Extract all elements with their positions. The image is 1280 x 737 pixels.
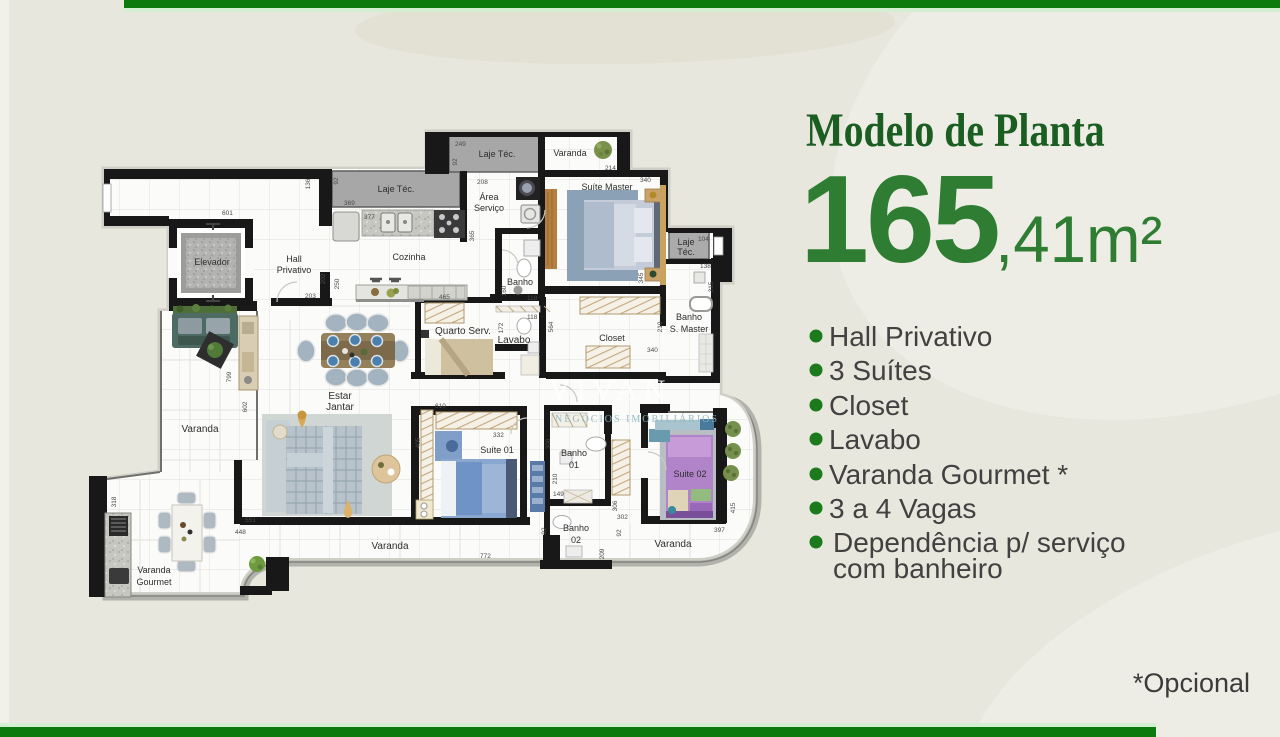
svg-text:Lavabo: Lavabo <box>498 335 531 346</box>
svg-text:,41m²: ,41m² <box>995 203 1162 276</box>
svg-text:448: 448 <box>235 529 246 536</box>
svg-text:Suite 02: Suite 02 <box>673 469 706 479</box>
svg-text:302: 302 <box>617 514 628 521</box>
svg-text:Varanda: Varanda <box>137 565 170 575</box>
svg-text:Téc.: Téc. <box>677 247 695 257</box>
svg-text:345: 345 <box>638 272 645 283</box>
svg-text:S. Master: S. Master <box>670 324 709 334</box>
svg-text:160: 160 <box>501 285 508 296</box>
svg-text:Suíte 01: Suíte 01 <box>480 445 514 455</box>
svg-text:Área: Área <box>479 192 498 202</box>
svg-text:Lavabo: Lavabo <box>829 424 921 455</box>
svg-text:149: 149 <box>553 491 564 498</box>
svg-text:VIVAN: VIVAN <box>549 374 672 407</box>
svg-text:Elevador: Elevador <box>194 257 230 267</box>
svg-text:165: 165 <box>800 151 998 289</box>
svg-text:210: 210 <box>552 473 559 484</box>
svg-text:415: 415 <box>730 502 737 513</box>
svg-text:3 a 4 Vagas: 3 a 4 Vagas <box>829 493 976 524</box>
svg-text:340: 340 <box>647 347 658 354</box>
svg-text:Varanda: Varanda <box>654 539 692 550</box>
svg-text:118: 118 <box>527 295 538 302</box>
svg-text:Varanda: Varanda <box>181 424 219 435</box>
svg-text:Cozinha: Cozinha <box>392 252 425 262</box>
svg-text:3 Suítes: 3 Suítes <box>829 355 932 386</box>
svg-text:Varanda: Varanda <box>371 541 409 552</box>
svg-text:772: 772 <box>480 553 491 560</box>
svg-text:214: 214 <box>605 165 616 172</box>
svg-text:Closet: Closet <box>829 390 909 421</box>
svg-text:Varanda: Varanda <box>553 148 586 158</box>
svg-text:104: 104 <box>698 236 709 243</box>
svg-text:Banho: Banho <box>561 448 587 458</box>
svg-text:377: 377 <box>364 214 375 221</box>
svg-text:172: 172 <box>498 322 505 333</box>
svg-text:Varanda Gourmet *: Varanda Gourmet * <box>829 459 1068 490</box>
svg-text:com banheiro: com banheiro <box>833 553 1003 584</box>
svg-text:01: 01 <box>569 460 579 470</box>
svg-text:250: 250 <box>334 278 341 289</box>
svg-text:209: 209 <box>599 548 606 559</box>
svg-text:02: 02 <box>571 535 581 545</box>
svg-text:Hall Privativo: Hall Privativo <box>829 321 992 352</box>
svg-text:397: 397 <box>714 527 725 534</box>
svg-text:799: 799 <box>226 371 233 382</box>
svg-text:92: 92 <box>616 529 623 537</box>
svg-text:564: 564 <box>548 321 555 332</box>
svg-text:332: 332 <box>493 432 504 439</box>
svg-text:369: 369 <box>344 200 355 207</box>
svg-text:Gourmet: Gourmet <box>136 577 172 587</box>
svg-text:Hall: Hall <box>286 254 302 264</box>
svg-text:Banho: Banho <box>563 523 589 533</box>
svg-text:306: 306 <box>612 500 619 511</box>
svg-text:203: 203 <box>305 293 316 300</box>
svg-text:Estar: Estar <box>328 391 352 402</box>
svg-text:202: 202 <box>320 273 327 284</box>
svg-text:210: 210 <box>657 321 664 332</box>
svg-text:*Opcional: *Opcional <box>1133 668 1250 698</box>
svg-text:610: 610 <box>435 403 446 410</box>
svg-text:318: 318 <box>111 496 118 507</box>
svg-text:465: 465 <box>439 294 450 301</box>
svg-text:Laje: Laje <box>677 237 694 247</box>
svg-text:208: 208 <box>477 179 488 186</box>
svg-text:Modelo de Planta: Modelo de Planta <box>806 104 1105 157</box>
svg-text:92: 92 <box>333 177 340 185</box>
svg-text:Suíte Master: Suíte Master <box>581 182 632 192</box>
svg-text:92: 92 <box>452 158 459 166</box>
svg-text:Serviço: Serviço <box>474 203 504 213</box>
svg-text:306: 306 <box>545 438 552 449</box>
svg-text:602: 602 <box>242 401 249 412</box>
svg-text:NEGÓCIOS IMOBILIÁRIOS: NEGÓCIOS IMOBILIÁRIOS <box>555 413 719 425</box>
svg-text:Banho: Banho <box>676 312 702 322</box>
svg-text:92: 92 <box>541 527 548 535</box>
svg-text:118: 118 <box>527 314 538 321</box>
svg-text:405: 405 <box>415 437 422 448</box>
svg-text:315: 315 <box>708 281 715 292</box>
svg-text:601: 601 <box>222 210 233 217</box>
svg-text:Jantar: Jantar <box>326 402 354 413</box>
svg-text:249: 249 <box>455 141 466 148</box>
svg-text:Laje Téc.: Laje Téc. <box>378 184 415 194</box>
svg-text:365: 365 <box>469 230 476 241</box>
svg-text:Privativo: Privativo <box>277 265 312 275</box>
svg-text:Closet: Closet <box>599 333 625 343</box>
svg-text:551: 551 <box>245 517 256 524</box>
svg-text:Laje Téc.: Laje Téc. <box>479 149 516 159</box>
svg-text:340: 340 <box>640 177 651 184</box>
svg-text:138: 138 <box>700 263 711 270</box>
svg-text:Banho: Banho <box>507 277 533 287</box>
svg-text:Quarto Serv.: Quarto Serv. <box>435 326 491 337</box>
svg-text:136: 136 <box>305 178 312 189</box>
